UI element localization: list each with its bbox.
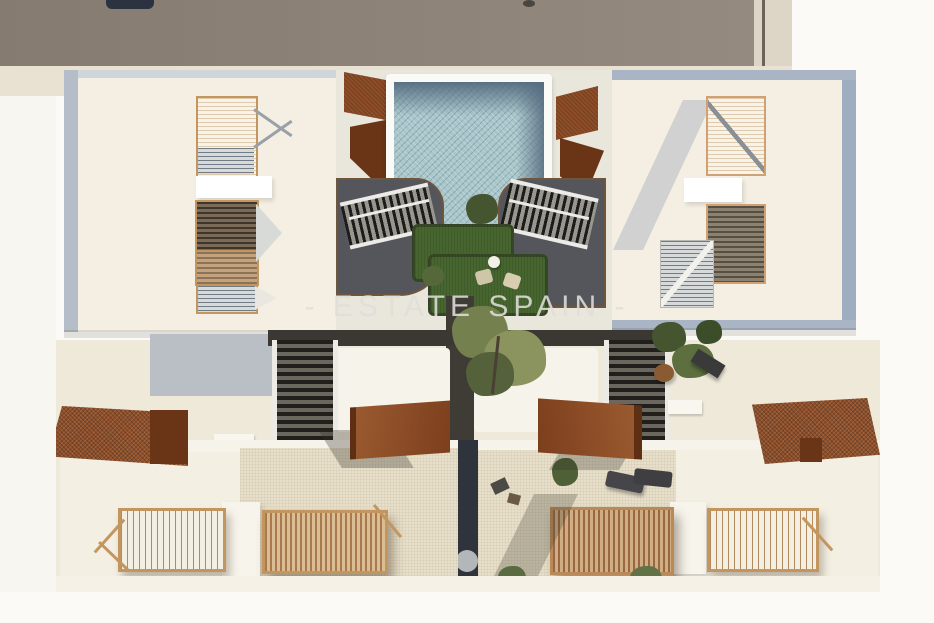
balcony-ur — [684, 178, 742, 202]
balcony-ul — [196, 176, 272, 198]
rooftop-vent — [106, 0, 154, 9]
ground-left — [0, 96, 56, 623]
ground-bottom — [0, 592, 934, 623]
stair-volume-right — [670, 502, 706, 574]
parapet-top-ul — [78, 70, 336, 78]
canopy-far-left-front — [150, 410, 188, 464]
passage-disc — [458, 550, 478, 572]
pergola-lower-right-dense — [550, 507, 674, 575]
canopy-mid-left — [350, 401, 450, 460]
lawn-shrub — [422, 266, 444, 286]
parapet-top-ur — [612, 70, 856, 80]
watermark-text: - ESTATE SPAIN - — [0, 290, 934, 324]
architectural-render: - ESTATE SPAIN - — [0, 0, 934, 623]
garden-table — [488, 256, 500, 268]
roof-vent-3 — [668, 400, 702, 414]
pergola-lower-left-dense — [262, 510, 388, 574]
pergola-ul-middle — [195, 200, 259, 254]
sunken-patio-left — [150, 334, 286, 396]
courtyard-tree-small — [466, 194, 498, 224]
canopy-mid-right — [538, 398, 642, 459]
street-edge — [754, 0, 792, 66]
pergola-ur-top — [706, 96, 766, 176]
street-edge-line — [762, 0, 765, 66]
central-tree-canopy-3 — [466, 352, 514, 396]
pergola-ul-middle-lower — [195, 250, 259, 286]
pergola-ul-top-shade — [198, 148, 254, 174]
passage-gap — [458, 440, 478, 592]
pergola-ur-middle — [706, 204, 766, 284]
canopy-far-right-panel — [800, 438, 822, 462]
rooftop-antenna — [523, 0, 535, 7]
terrace-round-table — [654, 364, 674, 382]
stair-volume-left — [222, 502, 260, 576]
ground-right — [880, 96, 934, 623]
pergola-lower-left-sparse — [118, 508, 226, 572]
neighbor-roof — [0, 0, 754, 66]
